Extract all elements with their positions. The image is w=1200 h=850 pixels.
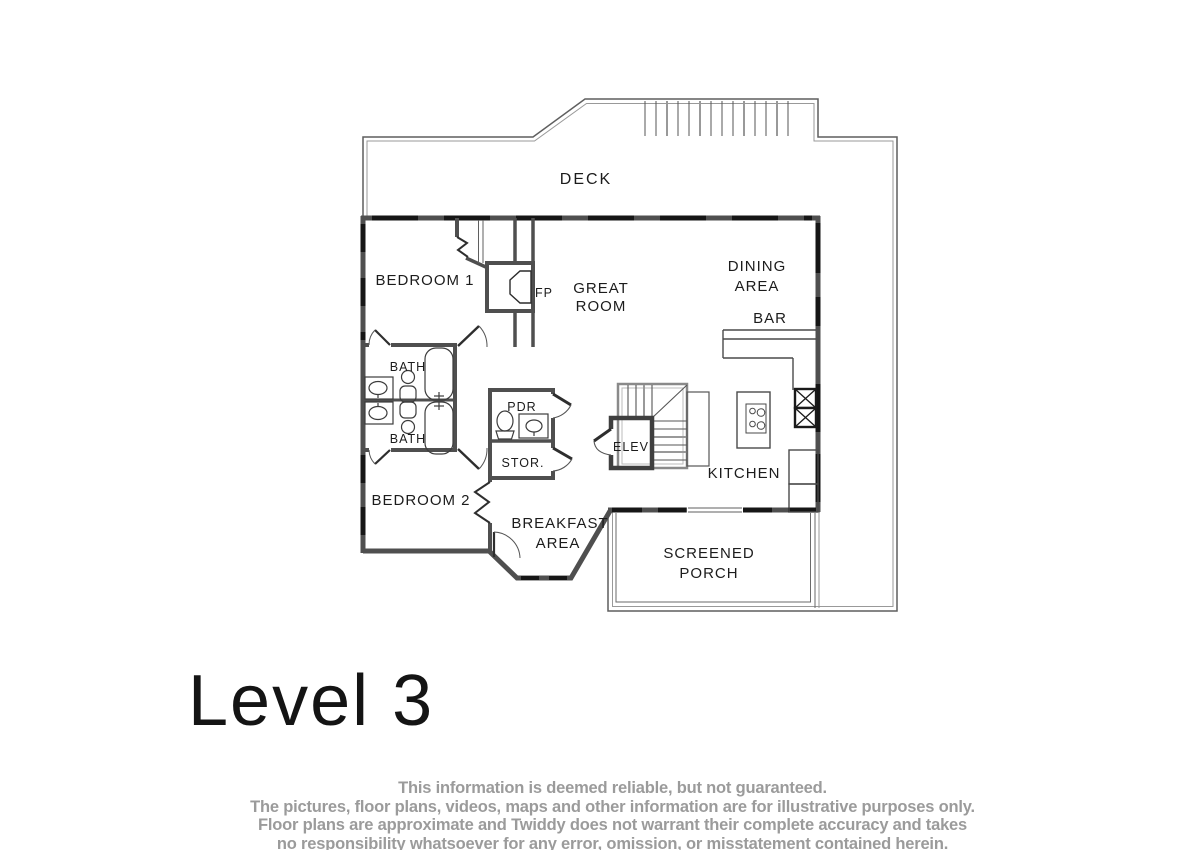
disclaimer-line-2: The pictures, floor plans, videos, maps … xyxy=(160,798,1065,817)
bar-label: BAR xyxy=(753,310,787,327)
powder-room-fixtures xyxy=(496,411,548,439)
bath-top-label: BATH xyxy=(390,360,426,374)
screened-porch-label-2: PORCH xyxy=(679,565,738,582)
breakfast-area-label-2: AREA xyxy=(536,535,581,552)
kitchen-label: KITCHEN xyxy=(708,465,781,482)
great-room-label-2: ROOM xyxy=(576,298,627,315)
fireplace-label: FP xyxy=(535,286,553,300)
bedroom1-label: BEDROOM 1 xyxy=(375,272,474,289)
floor-plan-drawing: DECK BEDROOM 1 FP GREAT ROOM DINING AREA… xyxy=(0,0,1200,850)
dining-area-label-1: DINING xyxy=(728,258,787,275)
bath-bottom-label: BATH xyxy=(390,432,426,446)
deck-label: DECK xyxy=(560,171,612,188)
porch-door-opening xyxy=(687,503,743,516)
bedroom2-label: BEDROOM 2 xyxy=(371,492,470,509)
disclaimer-line-1: This information is deemed reliable, but… xyxy=(160,779,1065,798)
screened-porch-label-1: SCREENED xyxy=(663,545,754,562)
level-title: Level 3 xyxy=(188,660,434,742)
double-oven xyxy=(795,389,816,427)
storage-label: STOR. xyxy=(502,456,545,470)
deck-door-jamb xyxy=(479,220,484,263)
disclaimer-line-4: no responsibility whatsoever for any err… xyxy=(160,835,1065,850)
great-room-label-1: GREAT xyxy=(573,280,629,297)
interior-stairs xyxy=(618,384,709,468)
fireplace xyxy=(487,263,533,311)
breakfast-area-label-1: BREAKFAST xyxy=(511,515,608,532)
powder-room-label: PDR xyxy=(507,400,536,414)
disclaimer-text: This information is deemed reliable, but… xyxy=(160,779,1065,850)
elevator-label: ELEV xyxy=(613,440,649,454)
dining-area-label-2: AREA xyxy=(735,278,780,295)
floor-plan-page: DECK BEDROOM 1 FP GREAT ROOM DINING AREA… xyxy=(0,0,1200,850)
disclaimer-line-3: Floor plans are approximate and Twiddy d… xyxy=(160,816,1065,835)
deck-stairs xyxy=(645,101,788,136)
room-labels: DECK BEDROOM 1 FP GREAT ROOM DINING AREA… xyxy=(371,171,786,582)
